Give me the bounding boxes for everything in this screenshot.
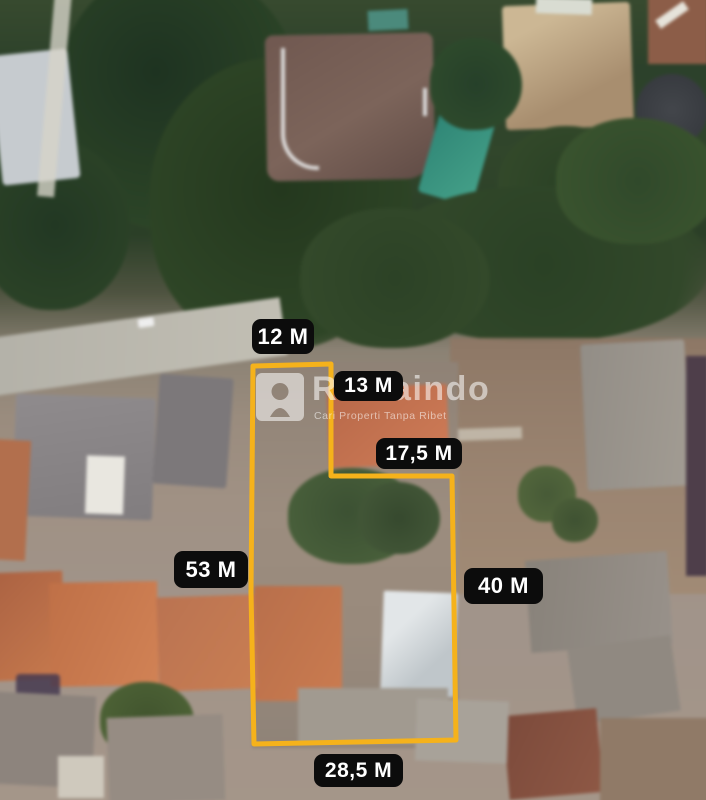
measurement-label-top: 12 M <box>252 319 314 354</box>
annotation-overlay: Rumaindo Cari Properti Tanpa Ribet 12 M … <box>0 0 706 800</box>
satellite-property-image: Rumaindo Cari Properti Tanpa Ribet 12 M … <box>0 0 706 800</box>
measurement-label-notch-vertical: 13 M <box>334 371 403 401</box>
plot-boundary-polygon <box>251 364 456 744</box>
measurement-label-left: 53 M <box>174 551 248 588</box>
measurement-label-notch-horizontal: 17,5 M <box>376 438 462 469</box>
measurement-label-bottom: 28,5 M <box>314 754 403 787</box>
measurement-label-right: 40 M <box>464 568 543 604</box>
